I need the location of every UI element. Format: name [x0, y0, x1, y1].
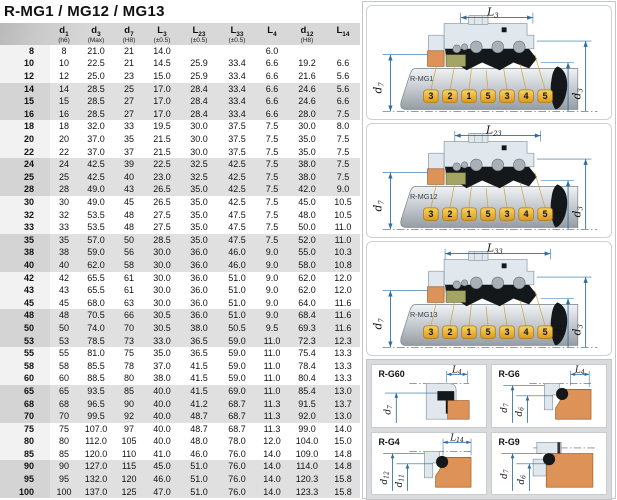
table-cell: 36.5 — [180, 347, 218, 360]
table-cell: 48.0 — [288, 209, 326, 222]
table-cell: 35.0 — [288, 133, 326, 146]
table-cell: 72.3 — [288, 335, 326, 348]
table-cell: 40 — [50, 259, 78, 272]
table-cell: 85 — [0, 448, 50, 461]
table-cell: 70.5 — [78, 309, 114, 322]
table-cell: 6.6 — [256, 108, 288, 121]
table-cell: 120.0 — [78, 448, 114, 461]
table-cell: 6.6 — [326, 95, 360, 108]
table-cell: 10.5 — [326, 209, 360, 222]
table-cell: 28.4 — [180, 83, 218, 96]
table-cell: 32 — [50, 209, 78, 222]
catalog-page: R-MG1 / MG12 / MG13 d1(h6)d3(Max)d7(H8)L… — [0, 0, 617, 500]
table-cell: 58 — [0, 360, 50, 373]
table-cell: 47.0 — [144, 486, 180, 499]
table-cell: 10.5 — [326, 196, 360, 209]
table-cell: 27 — [114, 95, 144, 108]
table-cell: 100 — [50, 486, 78, 499]
table-row: 535378.57333.036.559.011.072.312.3 — [0, 335, 360, 348]
svg-text:d6: d6 — [517, 474, 527, 484]
table-cell: 22 — [0, 146, 50, 159]
table-cell: 35.0 — [180, 196, 218, 209]
table-corner-cell — [0, 23, 50, 45]
diagram-r-mg1: R-MG1 L3 d7 d1 — [366, 5, 612, 120]
table-cell: 16 — [50, 108, 78, 121]
table-cell: 80.4 — [288, 372, 326, 385]
table-cell: 46.0 — [218, 246, 256, 259]
table-cell: 33.4 — [218, 108, 256, 121]
table-cell: 78 — [114, 360, 144, 373]
table-row: 9090127.011545.051.076.014.0114.014.8 — [0, 460, 360, 473]
seat-r-g60: R-G60 L4 d7 — [371, 364, 487, 428]
table-cell: 30.0 — [144, 259, 180, 272]
table-cell: 70 — [50, 410, 78, 423]
table-cell: 15.8 — [326, 486, 360, 499]
svg-text:2: 2 — [448, 209, 453, 219]
table-cell: 114.0 — [288, 460, 326, 473]
table-cell: 30 — [50, 196, 78, 209]
table-cell: 26.5 — [144, 196, 180, 209]
table-cell: 40 — [114, 171, 144, 184]
seat-label: R-G6 — [499, 369, 520, 379]
table-cell: 68.7 — [218, 398, 256, 411]
table-cell: 78.5 — [78, 335, 114, 348]
table-cell: 40 — [0, 259, 50, 272]
table-cell: 38 — [50, 246, 78, 259]
table-cell: 37.5 — [218, 133, 256, 146]
table-cell: 40.0 — [144, 410, 180, 423]
table-cell: 43 — [114, 183, 144, 196]
seal-drawing-r-mg12: R-MG12 L23 d7 d1 — [367, 124, 611, 237]
svg-text:5: 5 — [543, 327, 548, 337]
table-cell: 13.0 — [326, 410, 360, 423]
seat-r-g9: R-G9 d7 — [491, 432, 607, 496]
table-cell: 21.6 — [288, 70, 326, 83]
table-cell: 90 — [0, 460, 50, 473]
table-row: 202037.03521.530.037.57.535.07.5 — [0, 133, 360, 146]
table-cell: 42 — [0, 272, 50, 285]
table-cell: 43 — [50, 284, 78, 297]
svg-text:1: 1 — [467, 91, 472, 101]
table-cell: 30.0 — [180, 133, 218, 146]
table-cell: 65.5 — [78, 284, 114, 297]
table-cell: 99.0 — [288, 423, 326, 436]
table-cell: 19.2 — [288, 57, 326, 70]
svg-text:L4: L4 — [574, 365, 585, 375]
column-header: d3(Max) — [78, 23, 114, 45]
table-cell: 55 — [50, 347, 78, 360]
table-cell: 7.5 — [326, 146, 360, 159]
table-cell: 45.0 — [288, 196, 326, 209]
svg-text:5: 5 — [543, 91, 548, 101]
table-cell: 6.6 — [256, 95, 288, 108]
table-cell: 25.0 — [78, 70, 114, 83]
table-cell: 76.0 — [218, 473, 256, 486]
table-body: 8821.02114.06.0101022.52114.525.933.46.6… — [0, 45, 360, 498]
table-cell: 42.5 — [218, 183, 256, 196]
table-cell: 27.5 — [144, 221, 180, 234]
page-title: R-MG1 / MG12 / MG13 — [4, 3, 362, 20]
table-cell: 24.6 — [288, 95, 326, 108]
table-cell: 70 — [0, 410, 50, 423]
table-cell: 137.0 — [78, 486, 114, 499]
table-row: 9595132.012046.051.076.014.0120.315.8 — [0, 473, 360, 486]
table-cell: 7.5 — [256, 234, 288, 247]
table-row: 353557.05028.535.047.57.552.011.0 — [0, 234, 360, 247]
diagram-label: R-MG1 — [410, 74, 434, 83]
table-cell: 30.0 — [144, 284, 180, 297]
table-cell: 50 — [0, 322, 50, 335]
table-cell: 6.6 — [256, 70, 288, 83]
table-cell: 35.0 — [144, 347, 180, 360]
table-cell: 56 — [114, 246, 144, 259]
table-cell: 45.0 — [144, 460, 180, 473]
table-cell: 46.0 — [144, 473, 180, 486]
table-cell: 37.0 — [144, 360, 180, 373]
table-cell: 30.5 — [144, 322, 180, 335]
svg-text:d7: d7 — [372, 318, 386, 330]
table-cell: 12.0 — [326, 272, 360, 285]
table-row: 252542.54023.032.542.57.538.07.5 — [0, 171, 360, 184]
table-row: 100100137.012547.051.076.014.0123.315.8 — [0, 486, 360, 499]
table-cell: 25 — [114, 83, 144, 96]
table-cell: 55.0 — [288, 246, 326, 259]
table-cell: 40.0 — [144, 435, 180, 448]
table-cell: 70 — [114, 322, 144, 335]
table-cell: 92.0 — [288, 410, 326, 423]
table-cell: 30.5 — [144, 309, 180, 322]
table-cell: 7.5 — [256, 221, 288, 234]
table-cell: 7.5 — [326, 133, 360, 146]
table-cell: 17.0 — [144, 108, 180, 121]
table-cell: 104.0 — [288, 435, 326, 448]
dimension-table: d1(h6)d3(Max)d7(H8)L3(±0.5)L23(±0.5)L33(… — [0, 23, 360, 498]
table-cell: 41.5 — [180, 385, 218, 398]
table-panel: R-MG1 / MG12 / MG13 d1(h6)d3(Max)d7(H8)L… — [0, 0, 362, 500]
svg-text:d7: d7 — [372, 82, 386, 94]
table-cell: 7.5 — [256, 146, 288, 159]
table-cell: 90 — [50, 460, 78, 473]
table-cell: 14.0 — [256, 473, 288, 486]
table-cell: 21 — [114, 45, 144, 58]
table-cell: 21 — [114, 57, 144, 70]
table-cell: 62.0 — [288, 284, 326, 297]
table-cell: 7.5 — [256, 209, 288, 222]
table-cell — [288, 45, 326, 58]
table-cell: 81.0 — [78, 347, 114, 360]
table-cell: 48 — [114, 209, 144, 222]
table-cell: 51.0 — [180, 473, 218, 486]
table-cell: 22.5 — [78, 57, 114, 70]
svg-text:3: 3 — [505, 327, 510, 337]
table-cell: 68 — [50, 398, 78, 411]
table-cell: 69.3 — [288, 322, 326, 335]
table-cell: 28.5 — [78, 108, 114, 121]
table-cell: 109.0 — [288, 448, 326, 461]
dim-l33: L33 — [445, 242, 550, 259]
table-cell: 62.0 — [78, 259, 114, 272]
table-cell: 74.0 — [78, 322, 114, 335]
table-cell: 32.5 — [180, 171, 218, 184]
table-cell: 68.7 — [218, 423, 256, 436]
table-cell: 10.3 — [326, 246, 360, 259]
table-cell: 9.0 — [256, 297, 288, 310]
table-cell: 40.0 — [144, 385, 180, 398]
column-header: d7(H8) — [114, 23, 144, 45]
table-cell: 33 — [114, 120, 144, 133]
table-cell: 64.0 — [288, 297, 326, 310]
table-cell: 48 — [0, 309, 50, 322]
svg-text:3: 3 — [505, 91, 510, 101]
table-cell: 12 — [50, 70, 78, 83]
table-cell: 14 — [50, 83, 78, 96]
table-cell: 12.0 — [256, 435, 288, 448]
table-cell: 33.4 — [218, 83, 256, 96]
table-cell: 42.0 — [288, 183, 326, 196]
table-cell: 20 — [0, 133, 50, 146]
svg-text:3: 3 — [428, 91, 433, 101]
table-cell: 51.0 — [180, 486, 218, 499]
table-cell: 38.0 — [144, 372, 180, 385]
table-cell: 9.0 — [256, 309, 288, 322]
table-cell: 49.0 — [78, 196, 114, 209]
table-cell: 28 — [50, 183, 78, 196]
table-cell: 38 — [0, 246, 50, 259]
table-cell: 9.0 — [326, 183, 360, 196]
table-cell: 50 — [50, 322, 78, 335]
diagram-label: R-MG13 — [410, 310, 438, 319]
table-cell: 93.5 — [78, 385, 114, 398]
table-cell: 46.0 — [180, 448, 218, 461]
table-row: 686896.59040.041.268.711.391.513.7 — [0, 398, 360, 411]
table-cell: 35.0 — [180, 209, 218, 222]
table-row: 242442.53922.532.542.57.538.07.5 — [0, 158, 360, 171]
table-cell: 41.5 — [180, 372, 218, 385]
table-row: 8080112.010540.048.078.012.0104.015.0 — [0, 435, 360, 448]
table-cell: 11.0 — [326, 234, 360, 247]
table-cell: 88.5 — [78, 372, 114, 385]
table-cell: 8 — [50, 45, 78, 58]
table-cell: 7.5 — [326, 108, 360, 121]
column-header: L4 — [256, 23, 288, 45]
table-cell: 46.0 — [218, 259, 256, 272]
table-cell: 107.0 — [78, 423, 114, 436]
table-cell: 32.0 — [78, 120, 114, 133]
table-row: 323253.54827.535.047.57.548.010.5 — [0, 209, 360, 222]
table-cell: 85.4 — [288, 385, 326, 398]
table-row: 424265.56130.036.051.09.062.012.0 — [0, 272, 360, 285]
table-cell: 11.0 — [326, 221, 360, 234]
svg-text:L23: L23 — [485, 124, 502, 138]
table-cell: 15.8 — [326, 473, 360, 486]
table-cell: 13.0 — [326, 385, 360, 398]
table-cell: 13.3 — [326, 372, 360, 385]
table-row: 8585120.011041.046.076.014.0109.014.8 — [0, 448, 360, 461]
table-row: 151528.52717.028.433.46.624.66.6 — [0, 95, 360, 108]
table-cell: 51.0 — [218, 297, 256, 310]
table-cell: 63 — [114, 297, 144, 310]
table-cell: 30 — [0, 196, 50, 209]
table-row: 282849.04326.535.042.57.542.09.0 — [0, 183, 360, 196]
table-cell: 28.4 — [180, 108, 218, 121]
table-cell: 36.0 — [180, 246, 218, 259]
table-row: 505074.07030.538.050.59.569.311.6 — [0, 322, 360, 335]
table-cell: 25 — [0, 171, 50, 184]
diagram-label: R-MG12 — [410, 192, 438, 201]
table-cell: 14.0 — [256, 460, 288, 473]
column-header: L14 — [326, 23, 360, 45]
table-cell: 7.5 — [326, 171, 360, 184]
table-cell: 68.0 — [78, 297, 114, 310]
table-cell: 14.0 — [144, 45, 180, 58]
table-cell: 65 — [0, 385, 50, 398]
table-cell: 51.0 — [218, 309, 256, 322]
table-cell: 37.5 — [218, 120, 256, 133]
table-cell: 14 — [0, 83, 50, 96]
seat-drawing-r-g9: R-G9 d7 — [492, 433, 606, 495]
table-cell: 19.5 — [144, 120, 180, 133]
table-cell: 28.4 — [180, 95, 218, 108]
table-cell: 13.3 — [326, 360, 360, 373]
table-cell: 28 — [0, 183, 50, 196]
table-cell: 30.0 — [144, 246, 180, 259]
table-cell: 21.5 — [144, 133, 180, 146]
table-cell: 97 — [114, 423, 144, 436]
table-cell: 40.0 — [144, 398, 180, 411]
table-cell: 85.5 — [78, 360, 114, 373]
table-cell: 61 — [114, 272, 144, 285]
svg-text:1: 1 — [467, 209, 472, 219]
table-row: 707099.59240.048.768.711.392.013.0 — [0, 410, 360, 423]
table-cell: 24 — [0, 158, 50, 171]
table-cell: 33.0 — [144, 335, 180, 348]
table-cell: 76.0 — [218, 460, 256, 473]
table-cell: 68.4 — [288, 309, 326, 322]
table-cell: 96.5 — [78, 398, 114, 411]
table-cell: 59.0 — [78, 246, 114, 259]
svg-text:2: 2 — [448, 91, 453, 101]
table-cell: 42 — [50, 272, 78, 285]
table-row: 7575107.09740.048.768.711.399.014.0 — [0, 423, 360, 436]
table-cell: 11.0 — [256, 372, 288, 385]
table-cell: 6.6 — [256, 83, 288, 96]
table-cell: 10 — [0, 57, 50, 70]
svg-text:5: 5 — [543, 209, 548, 219]
table-cell: 32.5 — [180, 158, 218, 171]
table-cell: 36.0 — [180, 284, 218, 297]
table-cell: 50.5 — [218, 322, 256, 335]
table-cell: 42.5 — [218, 196, 256, 209]
svg-text:L14: L14 — [449, 433, 464, 443]
table-cell: 110 — [114, 448, 144, 461]
table-cell: 14.0 — [256, 486, 288, 499]
table-row: 404062.05830.036.046.09.058.010.8 — [0, 259, 360, 272]
column-header: d1(h6) — [50, 23, 78, 45]
table-cell: 36.0 — [180, 297, 218, 310]
table-cell: 95 — [0, 473, 50, 486]
diagram-panel: R-MG1 L3 d7 d1 — [362, 1, 616, 499]
table-cell: 11.3 — [256, 398, 288, 411]
table-cell: 65 — [50, 385, 78, 398]
table-cell: 33.4 — [218, 70, 256, 83]
table-row: 606088.58038.041.559.011.080.413.3 — [0, 372, 360, 385]
table-cell: 51.0 — [180, 460, 218, 473]
table-row: 656593.58540.041.569.011.085.413.0 — [0, 385, 360, 398]
table-cell: 11.6 — [326, 322, 360, 335]
svg-text:4: 4 — [524, 209, 529, 219]
svg-text:d7: d7 — [500, 469, 510, 479]
table-cell: 41.2 — [180, 398, 218, 411]
table-cell: 9.0 — [256, 259, 288, 272]
table-cell: 30.0 — [288, 120, 326, 133]
table-cell: 15.0 — [144, 70, 180, 83]
table-cell: 13.7 — [326, 398, 360, 411]
table-cell: 12.0 — [326, 284, 360, 297]
table-cell: 14.5 — [144, 57, 180, 70]
table-row: 555581.07535.036.559.011.075.413.3 — [0, 347, 360, 360]
table-cell: 21.5 — [144, 146, 180, 159]
table-cell: 51.0 — [218, 284, 256, 297]
table-row: 121225.02315.025.933.46.621.65.6 — [0, 70, 360, 83]
table-cell: 12.3 — [326, 335, 360, 348]
table-cell: 8.0 — [326, 120, 360, 133]
svg-text:4: 4 — [524, 327, 529, 337]
table-cell: 15 — [50, 95, 78, 108]
table-cell: 48.7 — [180, 410, 218, 423]
svg-text:5: 5 — [486, 91, 491, 101]
table-cell: 38.0 — [288, 158, 326, 171]
table-cell: 35.0 — [180, 221, 218, 234]
table-cell: 37.5 — [218, 146, 256, 159]
diagram-r-mg13: R-MG13 L33 d7 d1 — [366, 241, 612, 356]
table-cell: 7.5 — [256, 120, 288, 133]
table-cell: 42.5 — [78, 158, 114, 171]
table-cell: 27.5 — [144, 209, 180, 222]
table-cell: 13.3 — [326, 347, 360, 360]
table-cell: 59.0 — [218, 335, 256, 348]
table-row: 222237.03721.530.037.57.535.07.5 — [0, 146, 360, 159]
table-cell: 42.5 — [218, 158, 256, 171]
column-header: L33(±0.5) — [218, 23, 256, 45]
table-cell: 48.0 — [180, 435, 218, 448]
table-cell: 35.0 — [180, 183, 218, 196]
table-cell: 37.0 — [78, 146, 114, 159]
table-cell: 41.5 — [180, 360, 218, 373]
table-row: 383859.05630.036.046.09.055.010.3 — [0, 246, 360, 259]
table-cell: 68 — [0, 398, 50, 411]
table-cell: 5.6 — [326, 70, 360, 83]
table-cell: 36.0 — [180, 259, 218, 272]
table-cell: 49.0 — [78, 183, 114, 196]
svg-text:5: 5 — [486, 327, 491, 337]
seat-variants-grid: R-G60 L4 d7 — [366, 359, 612, 500]
table-cell: 85 — [114, 385, 144, 398]
table-cell: 53.5 — [78, 221, 114, 234]
table-cell: 24.6 — [288, 83, 326, 96]
table-header: d1(h6)d3(Max)d7(H8)L3(±0.5)L23(±0.5)L33(… — [0, 23, 360, 45]
table-cell: 11.0 — [256, 347, 288, 360]
table-cell: 62.0 — [288, 272, 326, 285]
seat-drawing-r-g60: R-G60 L4 d7 — [372, 365, 486, 427]
table-cell: 58 — [50, 360, 78, 373]
table-cell: 30.0 — [180, 146, 218, 159]
table-cell: 99.5 — [78, 410, 114, 423]
table-cell: 9.0 — [256, 246, 288, 259]
dim-l4: L4 — [570, 365, 589, 387]
table-cell: 125 — [114, 486, 144, 499]
table-cell: 12 — [0, 70, 50, 83]
table-cell: 33 — [0, 221, 50, 234]
